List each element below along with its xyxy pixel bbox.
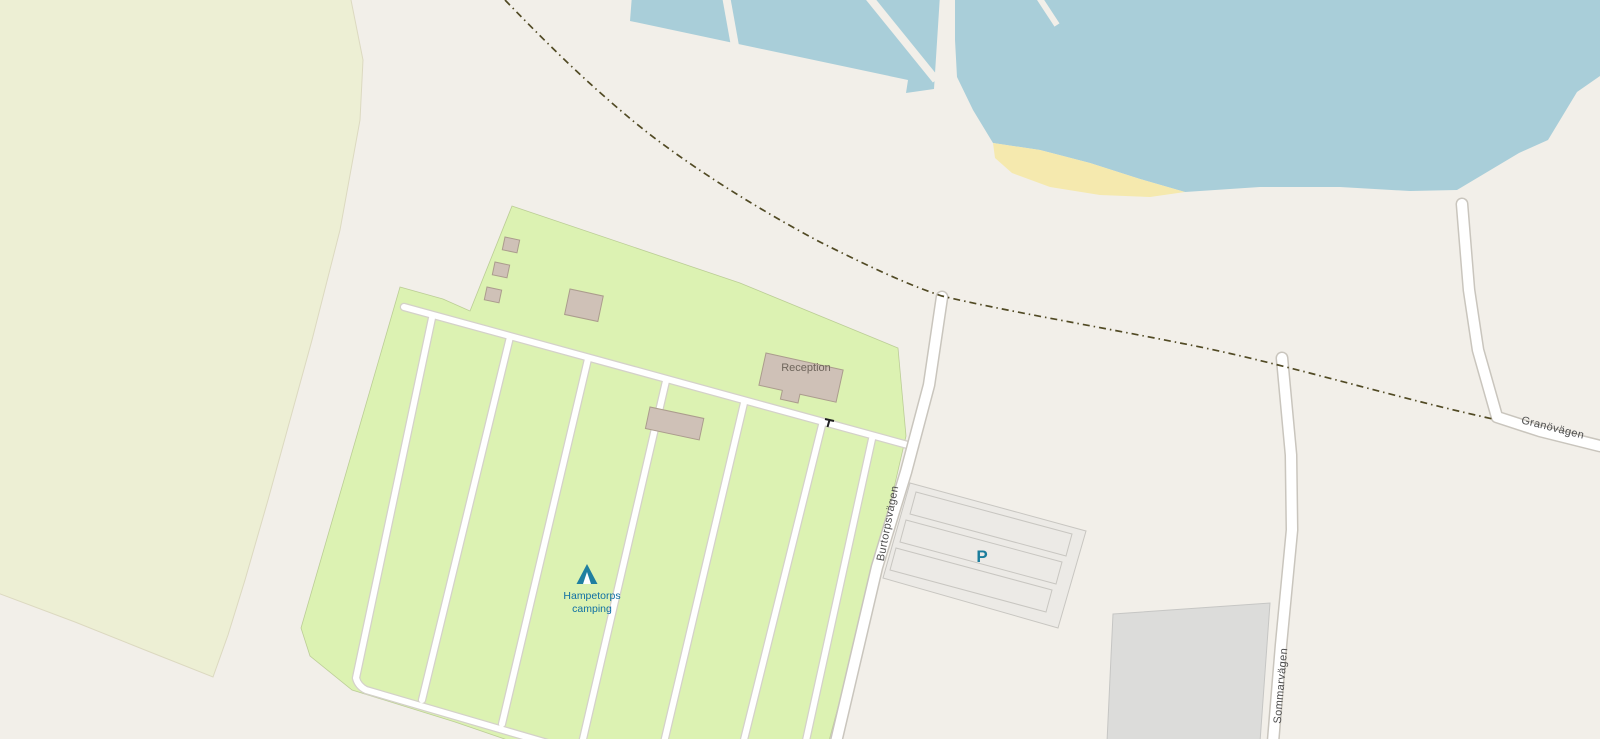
reception-label: Reception <box>781 362 831 374</box>
building-hut <box>492 262 509 278</box>
building-hut <box>484 287 501 303</box>
campsite-label-line2: camping <box>572 603 612 615</box>
map-canvas[interactable]: Reception Hampetorps camping Burtorpsväg… <box>0 0 1600 739</box>
building-hut <box>502 237 519 253</box>
parking-p-icon: P <box>976 547 987 566</box>
campsite-label-line1: Hampetorps <box>563 590 620 602</box>
map-svg: Reception Hampetorps camping Burtorpsväg… <box>0 0 1600 739</box>
paved-area <box>1107 603 1270 739</box>
